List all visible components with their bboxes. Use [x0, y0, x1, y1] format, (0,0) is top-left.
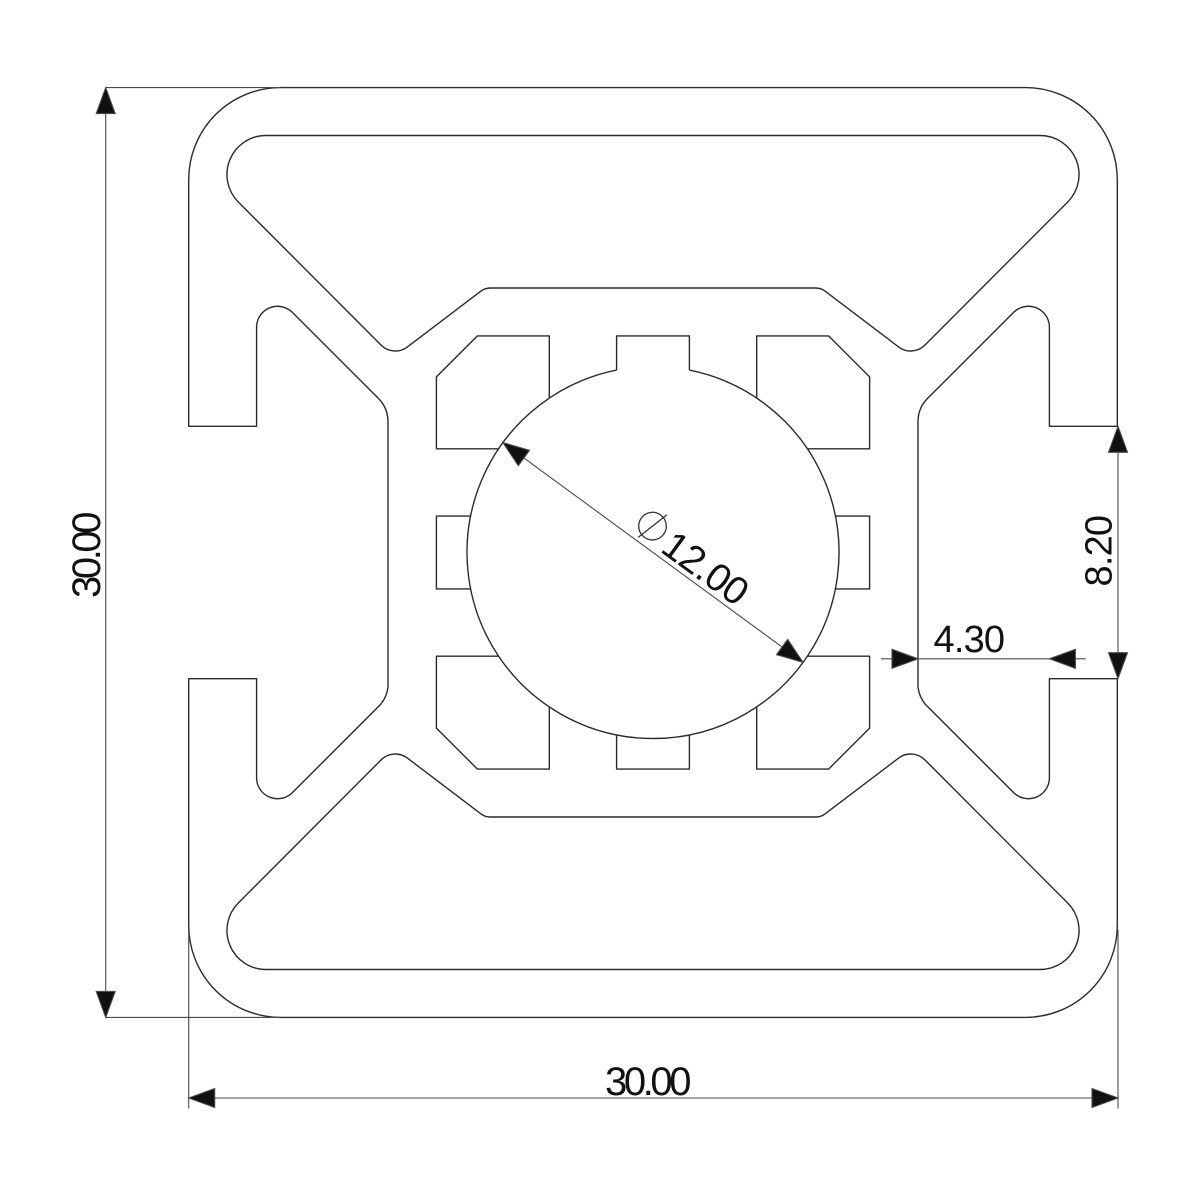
- svg-text:30.00: 30.00: [65, 513, 109, 598]
- svg-text:8.20: 8.20: [1079, 516, 1121, 587]
- svg-text:4.30: 4.30: [934, 619, 1005, 661]
- svg-text:30.00: 30.00: [605, 1060, 690, 1104]
